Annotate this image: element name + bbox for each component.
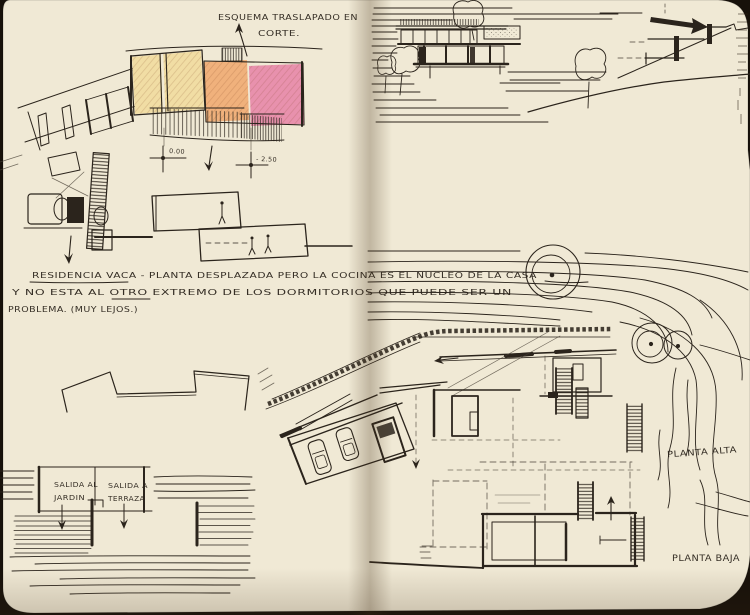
esquema-note-line2: CORTE. [258,29,300,38]
room1-label-line2: JARDIN [53,494,85,502]
room2-label-line1: SALIDA A [108,482,148,490]
section-hatch-strip [152,108,242,138]
sketchbook-photo: ESQUEMA TRASLAPADO EN CORTE. 0.00 [0,0,750,615]
esquema-note-line1: ESQUEMA TRASLAPADO EN [218,13,358,22]
stair-run [627,404,642,452]
planta-baja-label: PLANTA BAJA [672,554,740,564]
residencia-note-line3: PROBLEMA. (MUY LEJOS.) [8,305,138,314]
bottom-shadow [0,568,750,615]
stair-run [556,368,572,414]
room2-label-line2: TERRAZA [107,495,145,503]
room1-label-line1: SALIDA AL [54,481,98,489]
solid-wall-block [67,197,84,223]
stair-run [578,482,593,520]
stone-wall-texture [486,28,518,37]
stair-run [631,517,644,561]
level-upper-value: 0.00 [169,147,185,156]
stair-run [576,388,588,418]
residencia-note-line1: RESIDENCIA VACA - PLANTA DESPLAZADA PERO… [32,271,537,280]
level-lower-value: - 2.50 [256,155,277,164]
section-hatch-strip-dense [240,114,282,142]
dense-hatch-block [222,48,242,61]
gutter-shadow [348,0,392,615]
